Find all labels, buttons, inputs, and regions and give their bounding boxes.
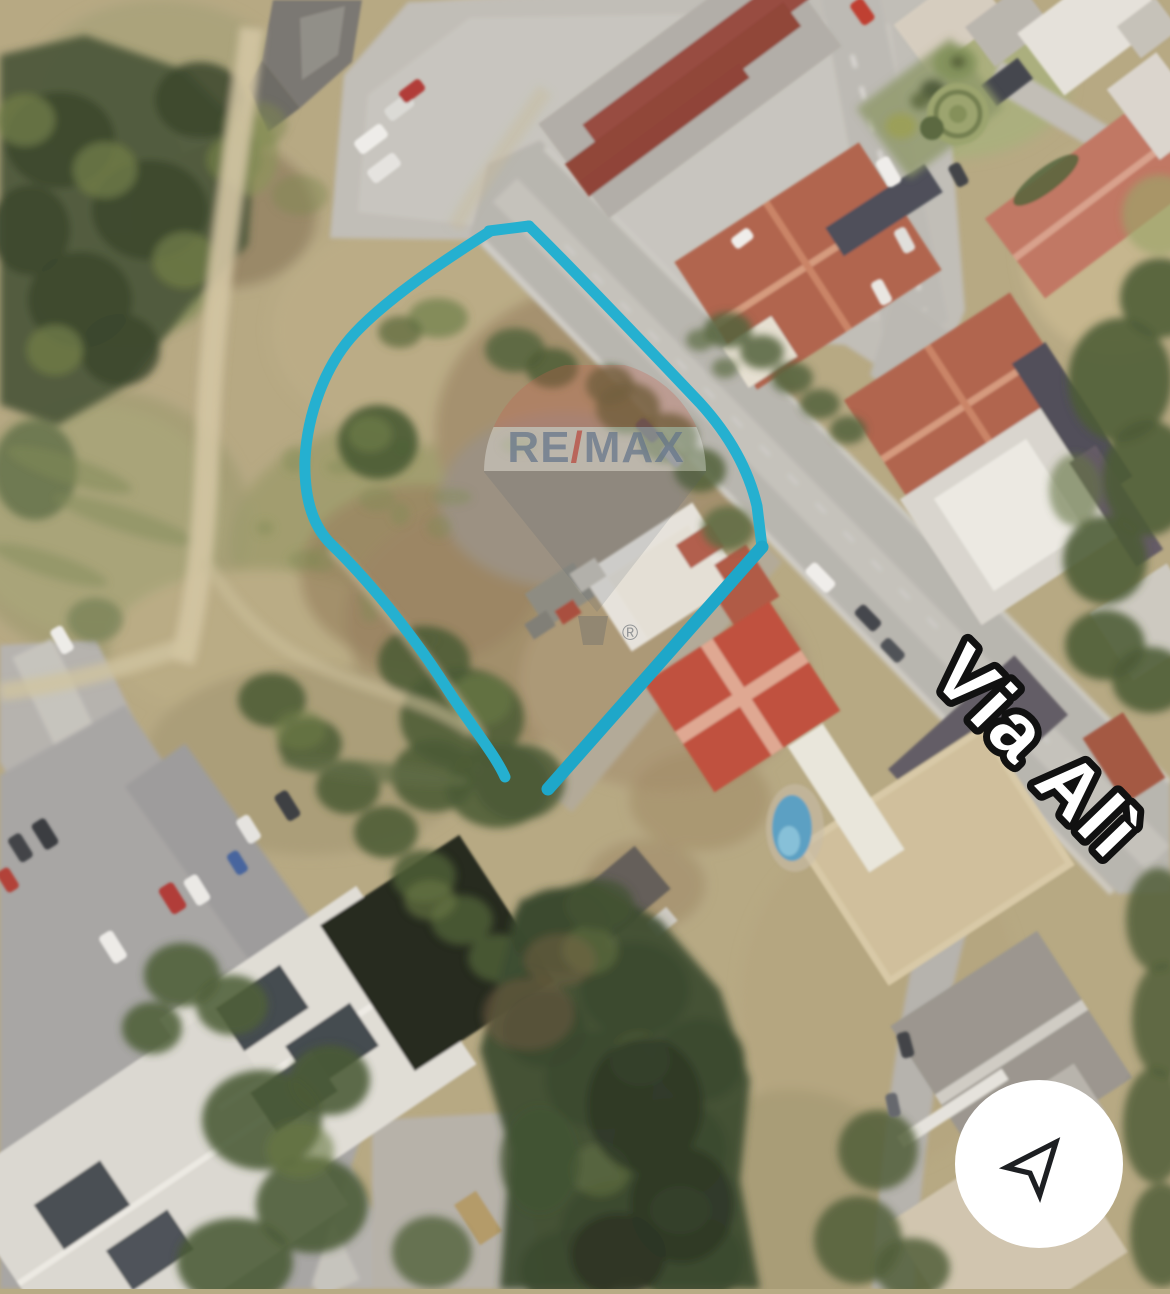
svg-text:®: ® — [622, 620, 638, 645]
svg-text:RE/MAX: RE/MAX — [507, 423, 684, 472]
